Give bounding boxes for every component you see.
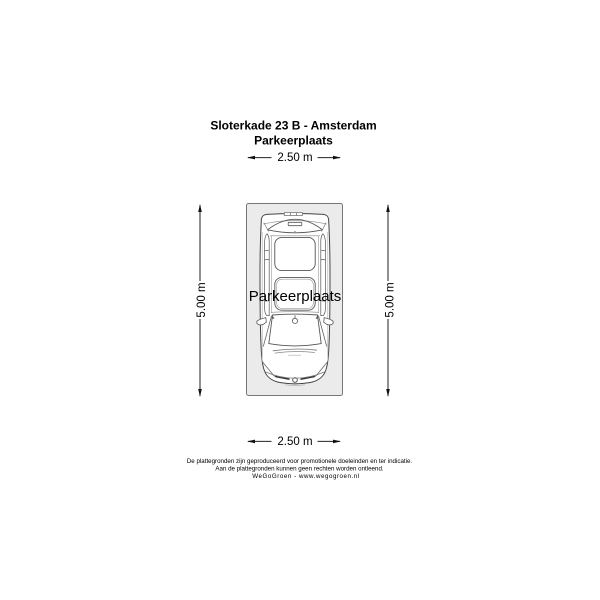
svg-text:Aan de plattegronden kunnen ge: Aan de plattegronden kunnen geen rechten… [215,466,384,473]
svg-text:5.00 m: 5.00 m [385,282,397,317]
svg-text:2.50 m: 2.50 m [277,152,312,164]
svg-text:5.00 m: 5.00 m [196,282,208,317]
svg-text:2.50 m: 2.50 m [277,436,312,448]
svg-text:Parkeerplaats: Parkeerplaats [249,288,342,305]
svg-text:Sloterkade 23 B - Amsterdam: Sloterkade 23 B - Amsterdam [210,118,376,132]
svg-text:Parkeerplaats: Parkeerplaats [254,133,333,147]
svg-text:De plattegronden zijn geproduc: De plattegronden zijn geproduceerd voor … [187,458,413,465]
svg-text:WeGoGroen - www.wegogroen.nl: WeGoGroen - www.wegogroen.nl [252,473,359,480]
